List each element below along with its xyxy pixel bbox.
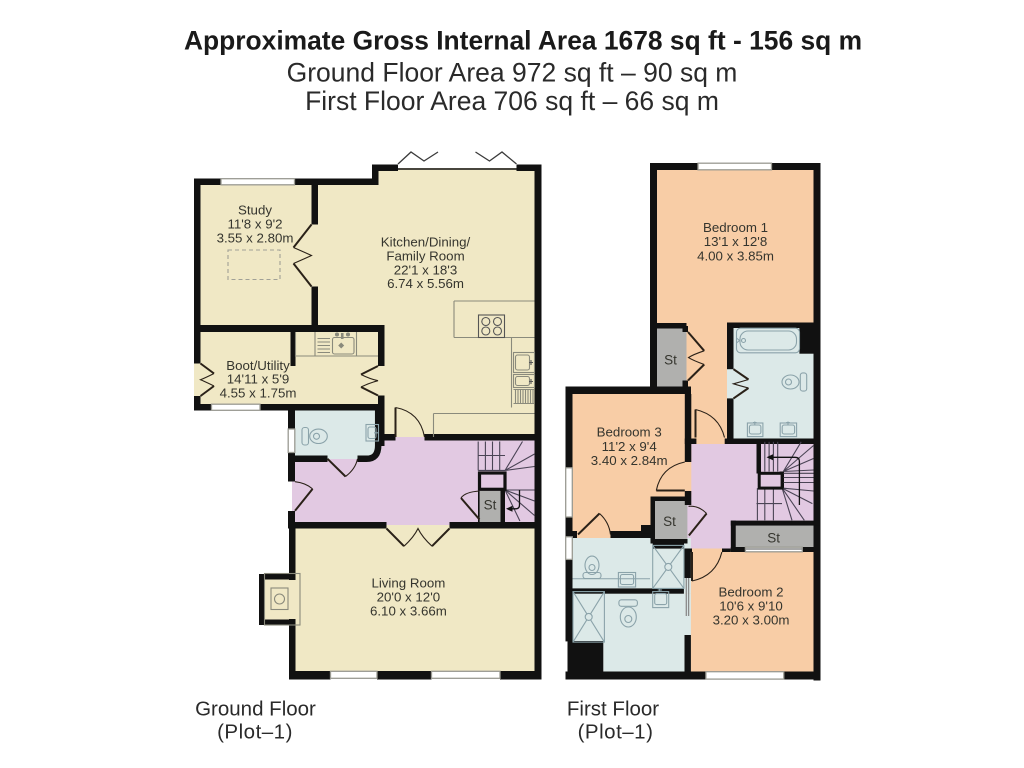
svg-text:10'6 x 9'10: 10'6 x 9'10 [719,598,783,613]
svg-text:3.40 x 2.84m: 3.40 x 2.84m [591,453,668,468]
svg-text:Ground Floor Area 972 sq ft –: Ground Floor Area 972 sq ft – 90 sq m [287,58,738,88]
svg-text:6.10 x 3.66m: 6.10 x 3.66m [370,604,447,619]
svg-text:Family Room: Family Room [386,249,464,264]
svg-text:4.55 x 1.75m: 4.55 x 1.75m [220,385,297,400]
svg-text:Living Room: Living Room [371,576,445,591]
svg-text:Bedroom 1: Bedroom 1 [703,220,768,235]
svg-text:Study: Study [238,203,272,218]
svg-text:First Floor Area 706 sq ft – 6: First Floor Area 706 sq ft – 66 sq m [305,86,719,116]
svg-text:St: St [664,353,677,368]
svg-text:Kitchen/Dining/: Kitchen/Dining/ [381,235,471,250]
svg-text:St: St [663,514,676,529]
svg-text:St: St [484,498,497,513]
svg-text:22'1 x 18'3: 22'1 x 18'3 [394,262,458,277]
svg-text:(Plot–1): (Plot–1) [217,721,293,744]
svg-text:Bedroom 3: Bedroom 3 [597,425,662,440]
svg-text:11'2 x 9'4: 11'2 x 9'4 [602,439,657,454]
svg-text:St: St [767,531,780,546]
svg-text:Ground Floor: Ground Floor [195,698,316,721]
svg-text:4.00 x 3.85m: 4.00 x 3.85m [697,248,774,263]
svg-text:6.74 x 5.56m: 6.74 x 5.56m [387,276,464,291]
svg-text:Approximate Gross Internal Are: Approximate Gross Internal Area 1678 sq … [184,26,862,56]
svg-text:3.20 x 3.00m: 3.20 x 3.00m [713,612,790,627]
svg-text:13'1 x 12'8: 13'1 x 12'8 [704,234,768,249]
svg-text:(Plot–1): (Plot–1) [578,721,654,744]
svg-text:First Floor: First Floor [567,698,659,721]
svg-text:3.55 x 2.80m: 3.55 x 2.80m [217,231,294,246]
svg-text:11'8 x 9'2: 11'8 x 9'2 [227,217,282,232]
svg-text:20'0 x 12'0: 20'0 x 12'0 [377,590,441,605]
